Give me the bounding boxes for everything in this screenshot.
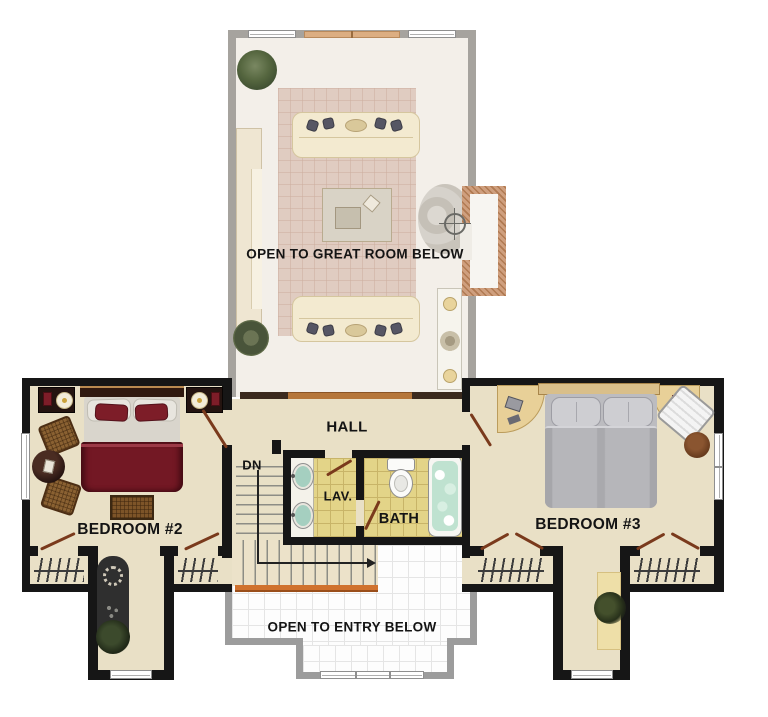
floor-plant xyxy=(233,320,269,356)
bathtub-water xyxy=(432,461,458,531)
accent-pillow xyxy=(95,403,129,422)
stairs-path-arrow xyxy=(367,558,376,568)
entry-void-floor-narrow xyxy=(303,645,447,673)
fireplace-center-mark xyxy=(444,213,466,235)
overlook-railing-wood xyxy=(288,392,412,399)
nightstand xyxy=(38,387,75,413)
lamp xyxy=(443,369,457,383)
round-table xyxy=(32,450,65,483)
stairs-railing xyxy=(235,585,378,592)
toilet-bowl xyxy=(389,469,413,498)
wall-bedroom3-closet-outer-left xyxy=(462,584,563,592)
table-lamp xyxy=(191,392,208,409)
entry-wall-step-left xyxy=(225,638,303,645)
label-bedroom2: BEDROOM #2 xyxy=(77,521,183,539)
great-room-window-right xyxy=(408,30,456,38)
coffee-table-book xyxy=(362,194,380,212)
rug-items xyxy=(105,604,121,620)
wall-bedroom2-bottom-seg xyxy=(22,546,38,556)
bedroom3-window xyxy=(714,433,723,500)
label-bath: BATH xyxy=(379,511,419,527)
wall-bedroom2-bottom-seg xyxy=(218,546,232,556)
coffee-table-tray xyxy=(335,207,361,229)
bed-bedroom2 xyxy=(80,386,184,492)
book xyxy=(43,459,55,474)
sofa-bottom xyxy=(292,296,420,342)
coffee-table xyxy=(322,188,392,242)
great-room-balcony-rail-divider xyxy=(351,31,353,38)
wall-bedroom3-left xyxy=(462,445,470,558)
closet-hanging-rod xyxy=(478,558,544,582)
sofa-top xyxy=(292,112,420,158)
wall-bedroom2-alcove-right xyxy=(164,546,174,680)
accent-pillow xyxy=(135,403,169,422)
table-lamp xyxy=(56,392,73,409)
bedroom2-window xyxy=(21,433,30,500)
comforter xyxy=(81,442,183,492)
bathtub xyxy=(428,455,462,537)
wall-bedroom2-right xyxy=(222,445,232,558)
sink xyxy=(293,503,313,528)
label-open-entry: OPEN TO ENTRY BELOW xyxy=(268,620,437,635)
sink-faucet xyxy=(291,513,295,517)
fireplace-center-cross-h xyxy=(439,223,471,224)
media-console-shelf xyxy=(251,169,262,309)
label-hall: HALL xyxy=(326,419,367,436)
sofa-top-center-cushion xyxy=(345,119,367,132)
wall-bath-bottom xyxy=(283,537,470,545)
potted-plant xyxy=(96,620,130,654)
wall-bedroom3-alcove-left xyxy=(553,546,563,680)
bedroom3-alcove-window xyxy=(571,670,613,679)
wall-stair-stub xyxy=(272,440,281,454)
great-room-wall-right-upper xyxy=(468,30,476,190)
wall-bath-top-seg xyxy=(352,450,470,458)
pillow xyxy=(551,397,601,427)
entry-wall-right xyxy=(470,588,477,645)
bench xyxy=(110,495,154,520)
label-dn: DN xyxy=(242,458,261,473)
laptop xyxy=(505,396,524,412)
pillow xyxy=(603,397,653,427)
wreath-decor xyxy=(103,566,123,586)
console-table xyxy=(437,288,462,390)
stairs-path-vertical xyxy=(257,470,259,563)
wall-lav-left xyxy=(283,450,291,545)
wall-top-left xyxy=(22,378,232,386)
entry-window xyxy=(320,671,424,679)
bedroom2-alcove-window xyxy=(110,670,152,679)
label-lav: LAV. xyxy=(324,489,353,504)
comforter xyxy=(545,426,657,508)
tree-plant xyxy=(237,50,277,90)
potted-plant xyxy=(594,592,626,624)
wall-bedroom2-closet-outer-right xyxy=(164,584,232,592)
flower-centerpiece xyxy=(440,331,460,351)
fireplace-center-cross-v xyxy=(454,208,455,240)
entry-wall-left xyxy=(225,588,232,645)
bed-bedroom3 xyxy=(538,383,660,508)
wall-lav-bath-partition xyxy=(356,458,364,500)
sink xyxy=(293,464,313,489)
wall-bedroom2-closet-outer-left xyxy=(22,584,98,592)
sofa-bottom-center-cushion xyxy=(345,324,367,337)
floor-plan: OPEN TO GREAT ROOM BELOW HALL DN LAV. BA… xyxy=(0,0,768,717)
stairs-path-horizontal xyxy=(257,562,367,564)
book xyxy=(43,392,52,406)
media-console xyxy=(236,128,262,348)
wall-bedroom3-left-stub xyxy=(462,386,470,412)
wall-bedroom3-closet-outer-right xyxy=(620,584,724,592)
label-bedroom3: BEDROOM #3 xyxy=(535,516,641,534)
wall-bedroom2-right-stub xyxy=(222,378,232,410)
sink-faucet xyxy=(291,474,295,478)
headboard xyxy=(80,386,184,397)
label-open-great-room: OPEN TO GREAT ROOM BELOW xyxy=(246,247,463,262)
wall-lav-bath-partition-stub xyxy=(356,526,364,537)
lamp xyxy=(443,297,457,311)
book xyxy=(211,392,220,406)
great-room-window-left xyxy=(248,30,296,38)
closet-hanging-rod xyxy=(634,558,700,582)
ottoman xyxy=(684,432,710,458)
closet-hanging-rod xyxy=(178,558,218,582)
wall-bedroom3-bottom-seg xyxy=(700,546,724,556)
desk-item xyxy=(507,414,521,425)
fireplace-interior xyxy=(470,194,498,288)
closet-hanging-rod xyxy=(34,558,84,582)
